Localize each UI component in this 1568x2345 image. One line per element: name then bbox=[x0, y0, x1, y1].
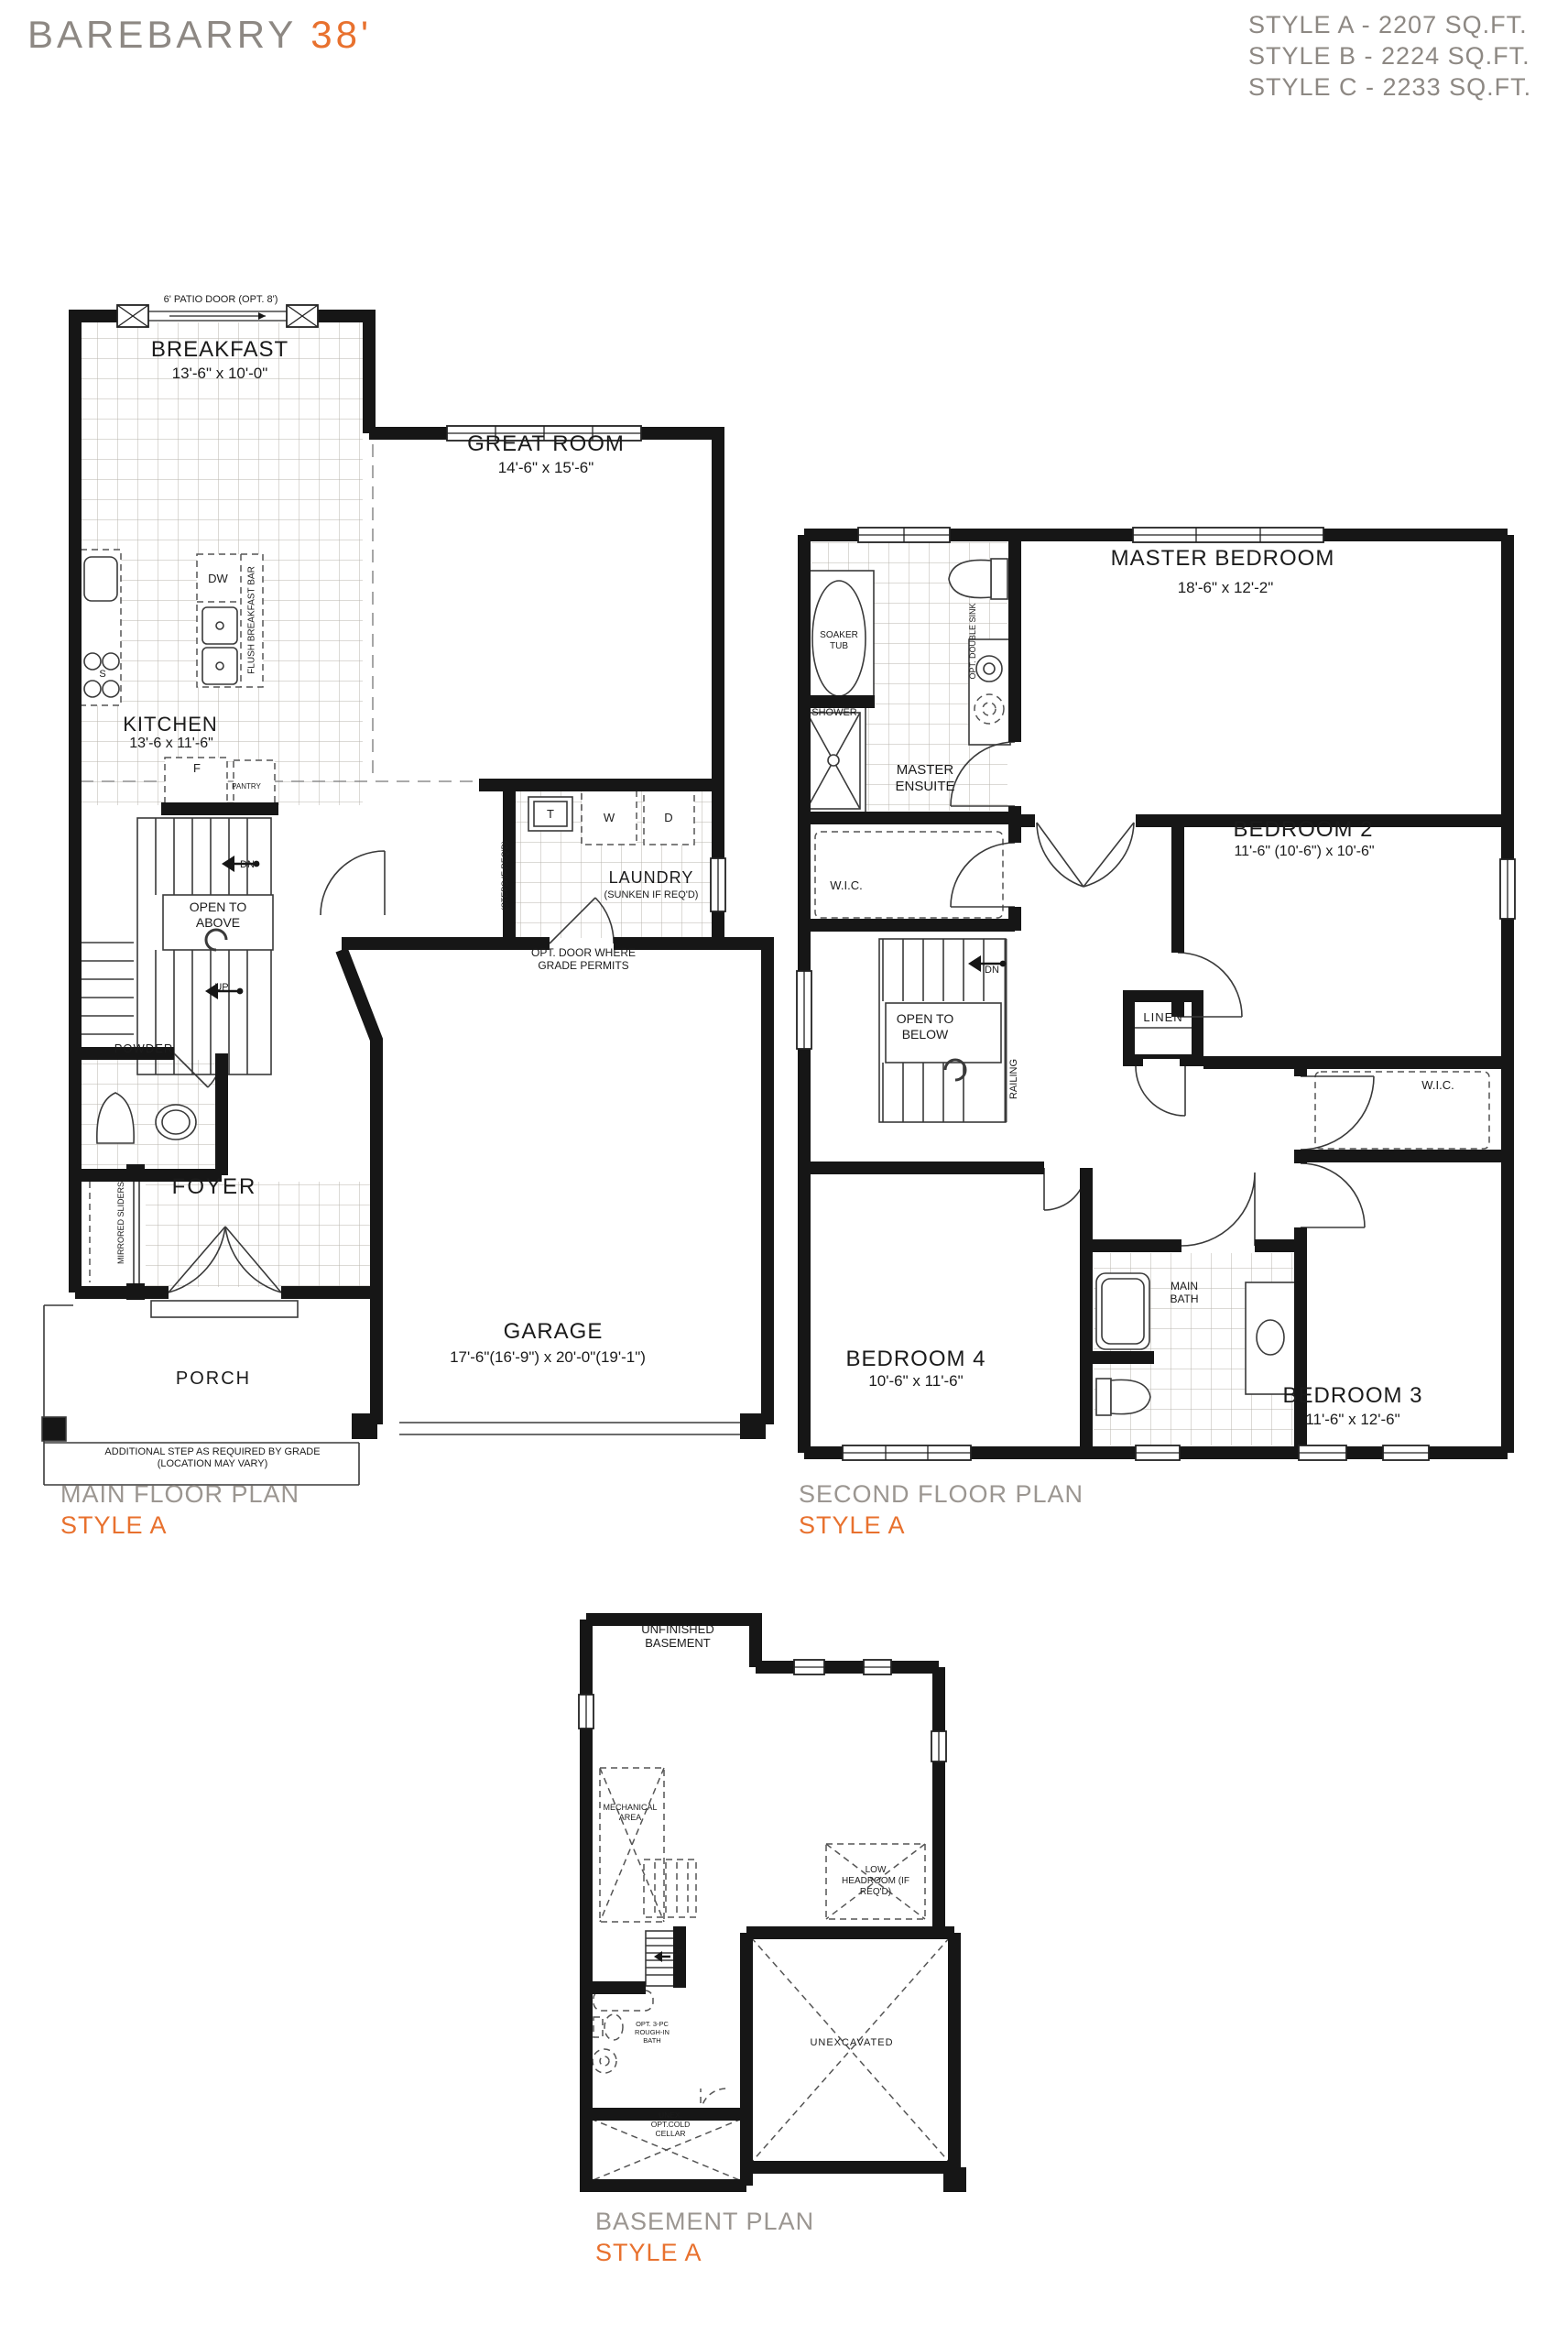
caption-main-floor-style: STYLE A bbox=[60, 1510, 299, 1541]
style-b-sqft: STYLE B - 2224 SQ.FT. bbox=[1248, 40, 1531, 71]
dishwasher-label: DW bbox=[208, 572, 228, 585]
caption-second-floor: SECOND FLOOR PLAN STYLE A bbox=[799, 1478, 1083, 1541]
laundry-window bbox=[711, 858, 725, 911]
opt-door-note: OPT. DOOR WHERE GRADE PERMITS bbox=[515, 946, 652, 972]
style-c-sqft: STYLE C - 2233 SQ.FT. bbox=[1248, 71, 1531, 103]
room-label-laundry: LAUNDRY bbox=[609, 868, 694, 888]
dn-label-2f: DN bbox=[985, 965, 999, 976]
room-label-powder: POWDER bbox=[114, 1042, 174, 1055]
bath-vanity bbox=[1246, 1282, 1295, 1394]
garage-door bbox=[352, 1413, 766, 1439]
second-floor-tiles bbox=[811, 542, 1293, 1445]
bath-toilet bbox=[1096, 1379, 1150, 1415]
pantry-label: PANTRY bbox=[232, 782, 261, 791]
linen-closet bbox=[1123, 990, 1203, 1068]
laundry-note: (SUNKEN IF REQ'D) bbox=[604, 889, 699, 901]
wic-bed3-label: W.I.C. bbox=[1421, 1078, 1454, 1092]
room-label-bedroom2: BEDROOM 2 bbox=[1233, 817, 1373, 843]
up-label: UP bbox=[214, 982, 228, 994]
floorplan-sheet: BAREBARRY 38' STYLE A - 2207 SQ.FT. STYL… bbox=[0, 0, 1568, 2345]
room-label-great-room: GREAT ROOM bbox=[467, 431, 625, 457]
basement-bath-roughin bbox=[593, 1991, 726, 2114]
caption-basement-style: STYLE A bbox=[595, 2237, 814, 2268]
dn-label: DN bbox=[240, 859, 255, 871]
room-label-breakfast: BREAKFAST bbox=[151, 337, 289, 363]
room-dims-breakfast: 13'-6" x 10'-0" bbox=[172, 365, 268, 383]
fridge-label: F bbox=[193, 761, 201, 775]
room-label-porch: PORCH bbox=[176, 1369, 251, 1391]
basement-stairs bbox=[644, 1860, 696, 1986]
stove-label: S bbox=[99, 669, 105, 681]
caption-main-floor: MAIN FLOOR PLAN STYLE A bbox=[60, 1478, 299, 1541]
mechanical-area-label: MECHANICAL AREA bbox=[600, 1803, 660, 1822]
patio-door-note: 6' PATIO DOOR (OPT. 8') bbox=[164, 294, 278, 306]
room-dims-garage: 17'-6"(16'-9") x 20'-0"(19'-1") bbox=[450, 1348, 646, 1367]
room-dims-master-bedroom: 18'-6" x 12'-2" bbox=[1178, 579, 1274, 597]
style-sqft-list: STYLE A - 2207 SQ.FT. STYLE B - 2224 SQ.… bbox=[1248, 9, 1531, 103]
room-label-kitchen: KITCHEN bbox=[123, 713, 218, 736]
soaker-tub-label: SOAKER TUB bbox=[817, 630, 861, 652]
caption-main-floor-name: MAIN FLOOR PLAN bbox=[60, 1478, 299, 1510]
flush-breakfast-bar-label: FLUSH BREAKFAST BAR bbox=[247, 566, 257, 674]
mirrored-sliders-label: MIRRORED SLIDERS bbox=[116, 1182, 125, 1264]
opt-double-sink-label: OPT. DOUBLE SINK bbox=[968, 603, 977, 679]
model-lot-width: 38' bbox=[310, 13, 372, 56]
railing-label: RAILING bbox=[1008, 1059, 1019, 1099]
up-label-basement: UP bbox=[672, 1948, 682, 1957]
washer-label: W bbox=[604, 811, 615, 824]
room-label-master-bedroom: MASTER BEDROOM bbox=[1111, 546, 1335, 572]
open-to-below-label: OPEN TO BELOW bbox=[879, 1011, 971, 1042]
caption-basement: BASEMENT PLAN STYLE A bbox=[595, 2206, 814, 2268]
model-name: BAREBARRY bbox=[27, 13, 297, 56]
bath-tub bbox=[1096, 1273, 1149, 1349]
basement-windows bbox=[579, 1660, 946, 1761]
room-dims-bedroom2: 11'-6" (10'-6") x 10'-6" bbox=[1234, 844, 1374, 861]
room-label-foyer: FOYER bbox=[172, 1174, 257, 1200]
room-dims-kitchen: 13'-6 x 11'-6" bbox=[129, 736, 213, 753]
shower bbox=[801, 707, 866, 814]
room-label-bedroom3: BEDROOM 3 bbox=[1282, 1383, 1422, 1409]
room-label-garage: GARAGE bbox=[504, 1319, 604, 1345]
basement-walls bbox=[586, 1620, 966, 2192]
dryer-label: D bbox=[664, 811, 672, 824]
room-label-master-ensuite: MASTER ENSUITE bbox=[882, 762, 969, 794]
open-to-above-label: OPEN TO ABOVE bbox=[168, 900, 268, 930]
steps-note: (STEPS IF REQ'D) bbox=[500, 841, 509, 911]
unexcavated-label: UNEXCAVATED bbox=[810, 2037, 893, 2049]
caption-second-floor-style: STYLE A bbox=[799, 1510, 1083, 1541]
basement-plan-drawing bbox=[577, 1610, 1007, 2252]
caption-second-floor-name: SECOND FLOOR PLAN bbox=[799, 1478, 1083, 1510]
caption-basement-name: BASEMENT PLAN bbox=[595, 2206, 814, 2237]
style-a-sqft: STYLE A - 2207 SQ.FT. bbox=[1248, 9, 1531, 40]
ensuite-toilet bbox=[949, 559, 1007, 599]
low-headroom-label: LOW HEADROOM (IF REQ'D) bbox=[840, 1865, 911, 1897]
unfinished-basement-label: UNFINISHED BASEMENT bbox=[627, 1622, 728, 1651]
grade-step-note: ADDITIONAL STEP AS REQUIRED BY GRADE (LO… bbox=[98, 1446, 327, 1470]
linen-label: LINEN bbox=[1143, 1010, 1182, 1024]
room-dims-bedroom3: 11'-6" x 12'-6" bbox=[1305, 1411, 1399, 1429]
room-dims-great-room: 14'-6" x 15'-6" bbox=[498, 459, 594, 477]
room-dims-bedroom4: 10'-6" x 11'-6" bbox=[868, 1372, 963, 1391]
wic-master-label: W.I.C. bbox=[830, 878, 862, 892]
main-stairs bbox=[79, 818, 273, 1074]
main-bath-label: MAIN BATH bbox=[1158, 1280, 1211, 1305]
shower-label: SHOWER bbox=[811, 707, 857, 719]
cold-cellar-label: UNEX. OPT.COLD CELLAR bbox=[644, 2110, 697, 2138]
roughin-bath-label: OPT. 3-PC ROUGH-IN BATH bbox=[633, 2021, 671, 2045]
page-title: BAREBARRY 38' bbox=[27, 13, 372, 57]
laundry-tub-label: T bbox=[547, 807, 554, 821]
room-label-bedroom4: BEDROOM 4 bbox=[845, 1347, 985, 1372]
kitchen-counter bbox=[81, 550, 121, 705]
wic-master-shelving bbox=[815, 832, 1003, 918]
